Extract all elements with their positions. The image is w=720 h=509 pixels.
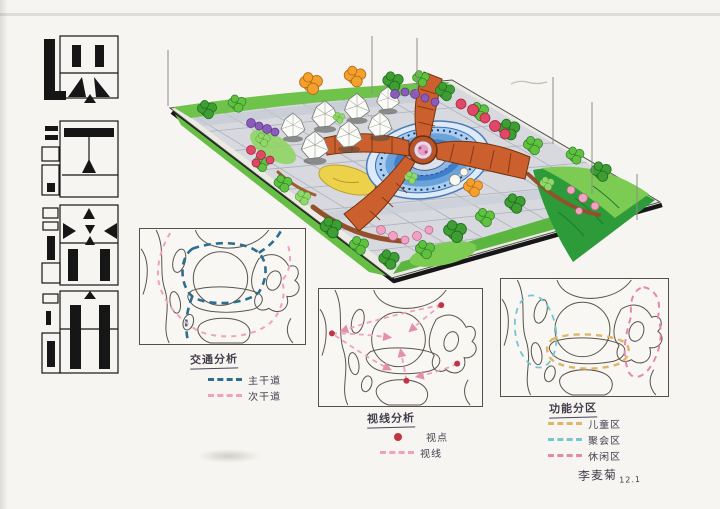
children-zone-swatch bbox=[548, 422, 582, 425]
calligraphy-title: 快速设计 bbox=[38, 33, 122, 377]
main-road-swatch bbox=[208, 378, 242, 381]
zoning-legend: 儿童区 聚会区 休闲区 bbox=[548, 417, 621, 462]
diagram-sightline-title: 视线分析 bbox=[367, 409, 415, 428]
signature-name: 李麦菊 bbox=[578, 468, 617, 483]
legend-label: 视点 bbox=[426, 429, 448, 444]
sightline-legend: 视点 视线 bbox=[380, 430, 448, 459]
legend-item: 儿童区 bbox=[548, 417, 621, 430]
leisure-zone-swatch bbox=[548, 454, 582, 457]
legend-item: 次干道 bbox=[208, 389, 281, 402]
legend-label: 聚会区 bbox=[588, 432, 621, 448]
presentation-board: 快速设计 bbox=[0, 0, 720, 509]
legend-label: 视线 bbox=[420, 445, 442, 460]
secondary-road-swatch bbox=[208, 394, 242, 397]
legend-label: 次干道 bbox=[248, 388, 281, 404]
diagram-traffic-analysis bbox=[139, 228, 306, 345]
legend-label: 休闲区 bbox=[588, 448, 621, 464]
signature-date: 12.1 bbox=[619, 475, 641, 485]
sightline-swatch bbox=[380, 451, 414, 454]
legend-item: 主干道 bbox=[208, 373, 281, 386]
pencil-smudge bbox=[197, 449, 261, 463]
signature: 李麦菊12.1 bbox=[578, 465, 641, 486]
diagram-zoning-analysis bbox=[500, 278, 669, 397]
viewpoint-swatch bbox=[394, 433, 402, 441]
gathering-zone-swatch bbox=[548, 438, 582, 441]
diagram-traffic-title: 交通分析 bbox=[190, 350, 238, 369]
legend-item: 休闲区 bbox=[548, 449, 621, 462]
traffic-legend: 主干道 次干道 bbox=[208, 373, 281, 402]
calligraphy-art bbox=[38, 33, 122, 377]
pencil-scribble bbox=[511, 81, 547, 84]
legend-item: 聚会区 bbox=[548, 433, 621, 446]
legend-item: 视线 bbox=[380, 446, 448, 459]
legend-item: 视点 bbox=[380, 430, 448, 443]
legend-label: 主干道 bbox=[248, 372, 281, 388]
diagram-sightline-analysis bbox=[318, 288, 483, 407]
legend-label: 儿童区 bbox=[588, 416, 621, 432]
